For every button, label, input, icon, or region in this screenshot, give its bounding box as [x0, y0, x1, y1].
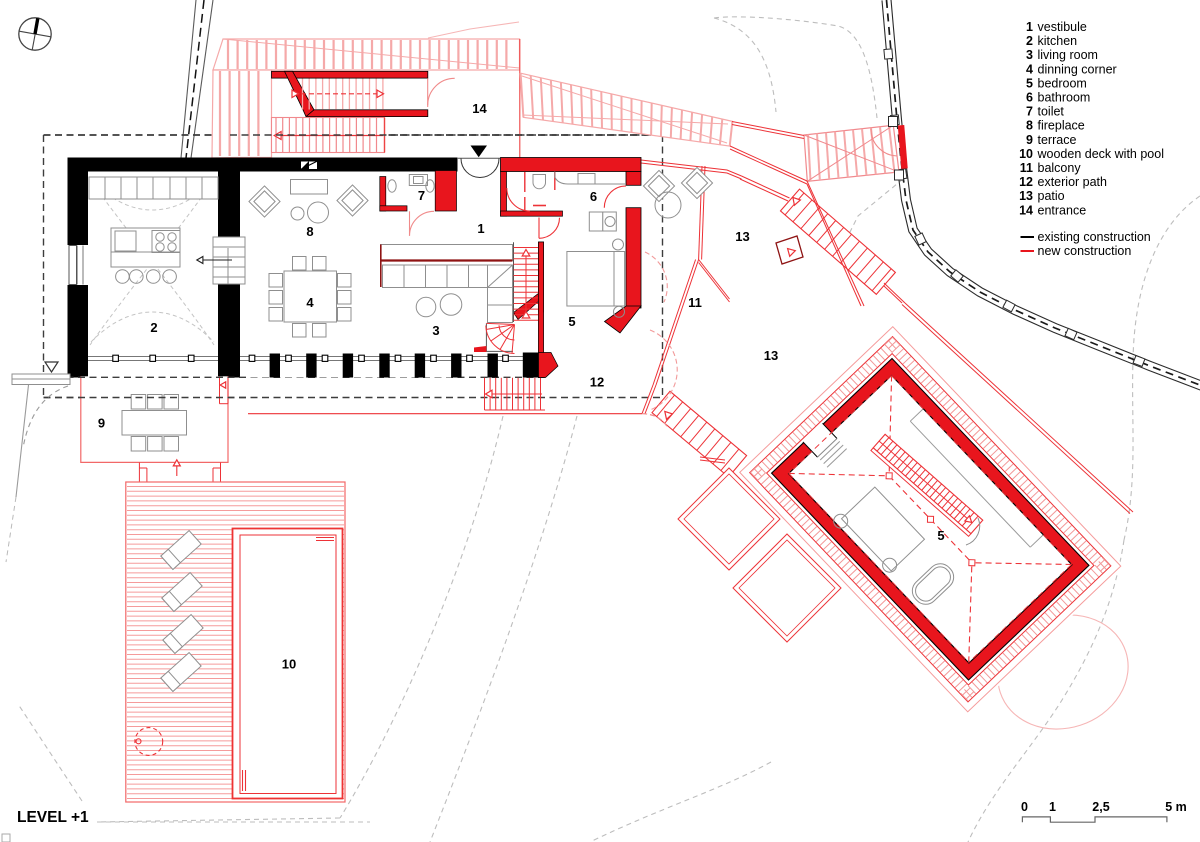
svg-text:10: 10 [1019, 147, 1033, 161]
svg-text:0: 0 [1021, 800, 1028, 814]
svg-text:9: 9 [98, 416, 105, 431]
svg-text:toilet: toilet [1038, 105, 1065, 119]
svg-text:dinning corner: dinning corner [1038, 62, 1117, 76]
svg-text:4: 4 [306, 295, 314, 310]
svg-text:LEVEL +1: LEVEL +1 [17, 809, 89, 826]
svg-text:11: 11 [688, 295, 702, 310]
svg-text:13: 13 [1019, 189, 1033, 203]
svg-text:13: 13 [764, 348, 778, 363]
svg-text:7: 7 [1026, 105, 1033, 119]
svg-text:vestibule: vestibule [1038, 20, 1087, 34]
svg-text:entrance: entrance [1038, 203, 1087, 217]
svg-text:3: 3 [1026, 48, 1033, 62]
svg-text:terrace: terrace [1038, 133, 1077, 147]
svg-text:5 m: 5 m [1165, 800, 1187, 814]
svg-text:13: 13 [735, 229, 749, 244]
svg-text:6: 6 [1026, 91, 1033, 105]
svg-text:2: 2 [1026, 34, 1033, 48]
svg-text:1: 1 [1049, 800, 1056, 814]
svg-text:5: 5 [937, 528, 944, 543]
svg-text:living room: living room [1038, 48, 1098, 62]
svg-text:fireplace: fireplace [1038, 119, 1085, 133]
svg-text:new construction: new construction [1038, 244, 1132, 258]
svg-text:8: 8 [1026, 119, 1033, 133]
svg-text:5: 5 [568, 314, 575, 329]
svg-text:balcony: balcony [1038, 161, 1082, 175]
svg-text:6: 6 [590, 189, 597, 204]
svg-text:10: 10 [282, 657, 296, 672]
svg-text:2,5: 2,5 [1092, 800, 1109, 814]
svg-text:12: 12 [1019, 175, 1033, 189]
svg-text:12: 12 [590, 375, 604, 390]
svg-text:14: 14 [472, 101, 487, 116]
svg-text:11: 11 [1020, 161, 1033, 175]
svg-text:patio: patio [1038, 189, 1065, 203]
svg-text:exterior path: exterior path [1038, 175, 1108, 189]
svg-text:14: 14 [1019, 203, 1033, 217]
svg-text:5: 5 [1026, 76, 1033, 90]
svg-text:7: 7 [418, 188, 425, 203]
svg-text:2: 2 [150, 320, 157, 335]
svg-text:kitchen: kitchen [1038, 34, 1078, 48]
svg-text:bathroom: bathroom [1038, 91, 1091, 105]
svg-text:4: 4 [1026, 62, 1033, 76]
svg-text:8: 8 [306, 224, 313, 239]
svg-text:9: 9 [1026, 133, 1033, 147]
svg-text:bedroom: bedroom [1038, 76, 1087, 90]
svg-text:1: 1 [1026, 20, 1033, 34]
svg-text:1: 1 [477, 221, 484, 236]
svg-text:3: 3 [432, 323, 439, 338]
svg-text:wooden deck with pool: wooden deck with pool [1037, 147, 1164, 161]
svg-text:existing construction: existing construction [1038, 230, 1151, 244]
